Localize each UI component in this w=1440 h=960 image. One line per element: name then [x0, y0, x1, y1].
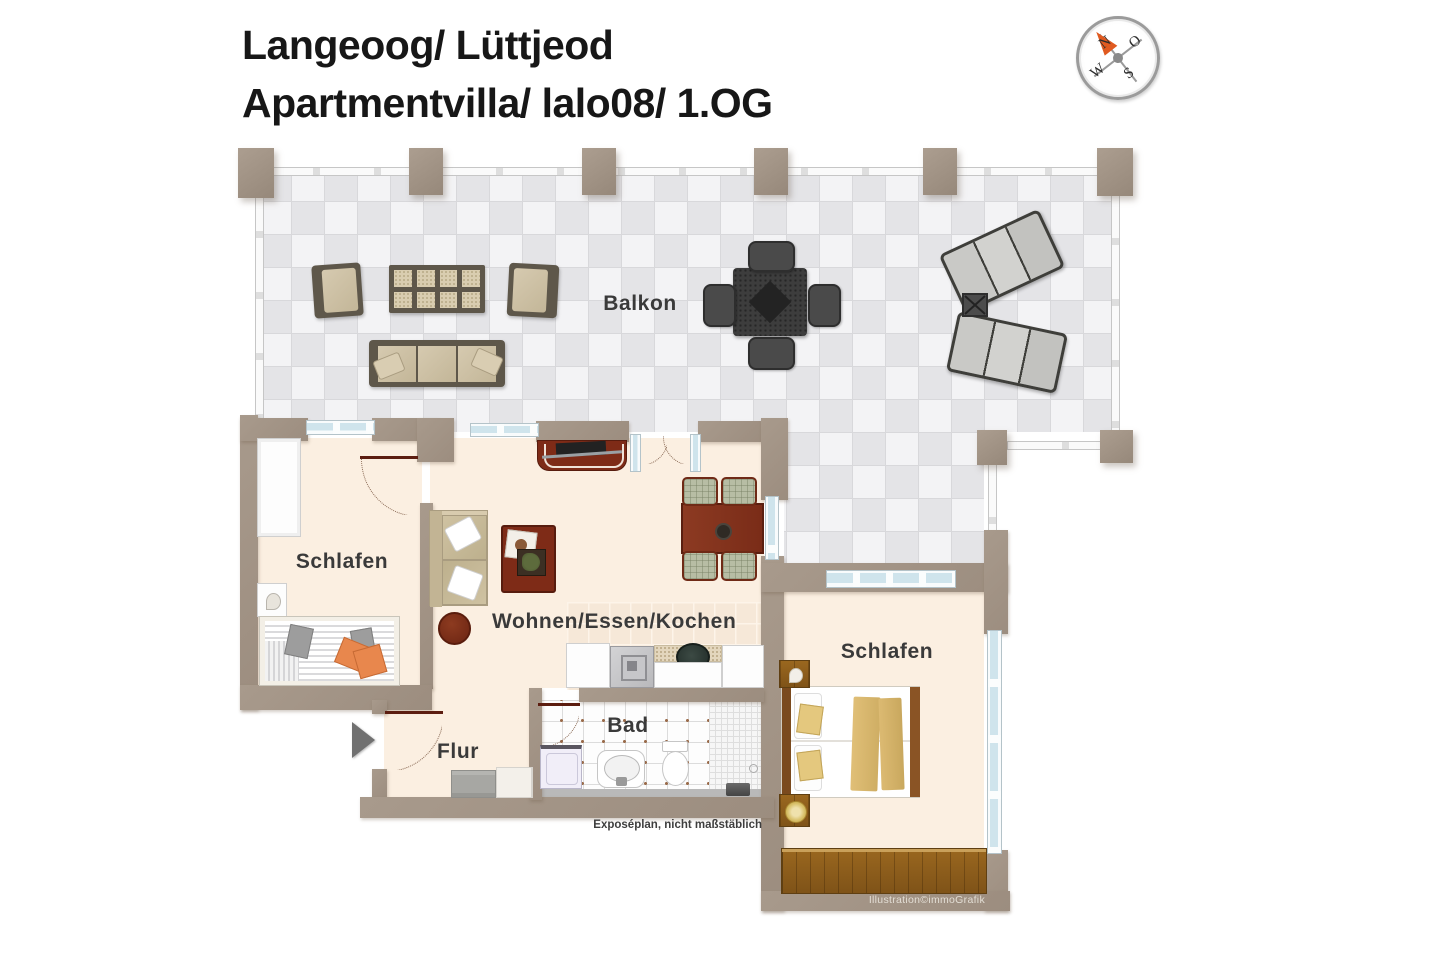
- bed-runner: [878, 698, 904, 791]
- scale-note: Exposéplan, nicht maßstäblich: [560, 819, 762, 831]
- window: [306, 420, 375, 435]
- window: [826, 570, 956, 588]
- washbasin: [597, 750, 645, 788]
- hall-cabinet: [496, 767, 533, 798]
- balcony-sofa: [369, 340, 505, 387]
- wall: [536, 421, 629, 442]
- title-line-1: Langeoog/ Lüttjeod: [242, 16, 773, 74]
- dining-chair: [682, 477, 718, 506]
- balcony-pillar: [977, 430, 1007, 465]
- wall: [761, 418, 788, 500]
- wall: [240, 415, 258, 710]
- bed: [259, 616, 400, 686]
- balcony-railing-right: [1111, 183, 1120, 435]
- balcony-pillar: [582, 148, 616, 195]
- shower-drain-icon: [749, 764, 758, 773]
- dining-chair: [721, 551, 757, 581]
- kitchen-cabinet: [722, 645, 764, 688]
- balcony-pillar: [1097, 148, 1133, 196]
- pillow: [796, 703, 824, 735]
- washing-machine: [540, 745, 582, 789]
- compass-w: W: [1087, 60, 1109, 82]
- room-label-living: Wohnen/Essen/Kochen: [492, 610, 704, 634]
- bed-runner: [850, 697, 880, 792]
- window: [765, 496, 779, 560]
- dining-table: [681, 503, 764, 554]
- room-label-balcony: Balkon: [595, 292, 685, 316]
- wall: [698, 421, 764, 442]
- title-line-2: Apartmentvilla/ lalo08/ 1.OG: [242, 74, 773, 132]
- floorplan-canvas: Langeoog/ Lüttjeod Apartmentvilla/ lalo0…: [0, 0, 1440, 960]
- kitchen-cabinet: [654, 662, 722, 688]
- balcony-dining-chair: [808, 284, 841, 327]
- balcony-dining-chair: [748, 241, 795, 272]
- balcony-dining-table: [733, 268, 807, 336]
- balcony-pillar: [754, 148, 788, 195]
- coffee-table: [501, 525, 556, 593]
- tv-sideboard: [537, 440, 627, 471]
- stove: [610, 646, 654, 688]
- room-label-bedroom-right: Schlafen: [832, 640, 942, 664]
- balcony-railing-top: [258, 167, 1120, 176]
- door-arc-bath: [538, 705, 579, 746]
- balcony-armchair: [507, 263, 560, 319]
- balcony-floor-extension: [784, 432, 984, 563]
- balcony-pillar: [238, 148, 274, 198]
- door-arc-balcony-right: [663, 436, 691, 464]
- kitchen-cabinet: [566, 643, 610, 688]
- wardrobe: [257, 438, 301, 537]
- wall: [372, 769, 387, 800]
- lounger-side-table: [962, 293, 988, 317]
- room-label-bedroom-left: Schlafen: [287, 550, 397, 574]
- compass-rose: N O S W: [1059, 0, 1177, 117]
- nightstand: [257, 583, 287, 617]
- wardrobe: [781, 848, 987, 894]
- nightstand: [779, 794, 810, 827]
- window: [987, 630, 1002, 854]
- balcony-dining-chair: [748, 337, 795, 370]
- balcony-coffee-table: [389, 265, 485, 313]
- credit-note: Illustration©immoGrafik: [848, 894, 985, 906]
- window: [470, 423, 539, 437]
- toilet: [662, 751, 689, 786]
- pillow: [796, 750, 823, 782]
- balcony-pillar: [923, 148, 957, 195]
- entrance-arrow-icon: [352, 722, 375, 758]
- balcony-door-frame: [690, 434, 701, 472]
- balcony-railing-bottom-right: [1007, 441, 1105, 450]
- dining-chair: [682, 551, 718, 581]
- dining-chair: [721, 477, 757, 506]
- double-bed: [781, 686, 920, 798]
- door-arc-bedroom-left: [361, 458, 418, 515]
- wall: [984, 530, 1008, 634]
- wall: [417, 418, 454, 462]
- nightstand: [779, 660, 810, 688]
- room-label-hall: Flur: [428, 740, 488, 764]
- balcony-railing-extension: [988, 462, 997, 534]
- wall: [360, 797, 774, 818]
- balcony-railing-left: [255, 176, 264, 422]
- sofa: [429, 510, 488, 606]
- room-label-bath: Bad: [600, 714, 656, 738]
- wall: [240, 685, 432, 710]
- shower-fixture-icon: [726, 783, 750, 796]
- page-title: Langeoog/ Lüttjeod Apartmentvilla/ lalo0…: [242, 16, 773, 132]
- balcony-pillar: [1100, 430, 1133, 463]
- compass: N O S W: [1076, 16, 1160, 100]
- wall: [579, 688, 764, 702]
- hall-sideboard: [451, 770, 496, 798]
- balcony-dining-chair: [703, 284, 736, 327]
- side-table: [438, 612, 471, 645]
- balcony-pillar: [409, 148, 443, 195]
- balcony-armchair: [311, 262, 364, 318]
